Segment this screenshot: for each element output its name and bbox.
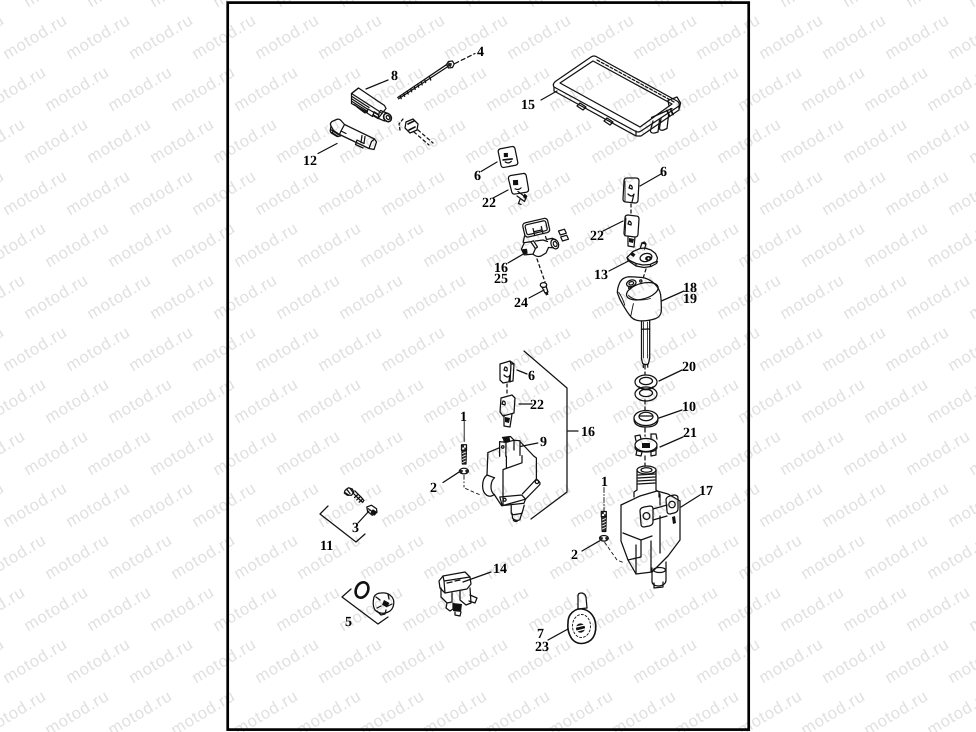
svg-text:4: 4 (477, 45, 484, 60)
svg-text:10: 10 (682, 400, 696, 415)
svg-text:6: 6 (660, 165, 667, 180)
svg-text:17: 17 (699, 484, 713, 499)
svg-text:6: 6 (474, 169, 481, 184)
svg-text:16: 16 (581, 425, 595, 440)
svg-text:12: 12 (303, 154, 317, 169)
svg-text:11: 11 (320, 539, 333, 554)
svg-text:15: 15 (521, 98, 535, 113)
svg-text:9: 9 (540, 435, 547, 450)
svg-text:14: 14 (493, 562, 507, 577)
svg-text:24: 24 (514, 296, 528, 311)
svg-text:6: 6 (528, 369, 535, 384)
svg-text:2: 2 (430, 481, 437, 496)
svg-text:21: 21 (683, 426, 697, 441)
svg-text:13: 13 (594, 268, 608, 283)
svg-text:23: 23 (535, 640, 549, 655)
svg-text:8: 8 (391, 69, 398, 84)
svg-text:1: 1 (601, 475, 608, 490)
svg-text:2: 2 (571, 548, 578, 563)
svg-text:3: 3 (352, 521, 359, 536)
svg-text:22: 22 (590, 229, 604, 244)
svg-text:5: 5 (345, 615, 352, 630)
svg-text:22: 22 (482, 196, 496, 211)
svg-text:20: 20 (682, 360, 696, 375)
svg-text:1: 1 (460, 410, 467, 425)
svg-text:25: 25 (494, 272, 508, 287)
svg-text:22: 22 (530, 398, 544, 413)
svg-text:19: 19 (683, 292, 697, 307)
